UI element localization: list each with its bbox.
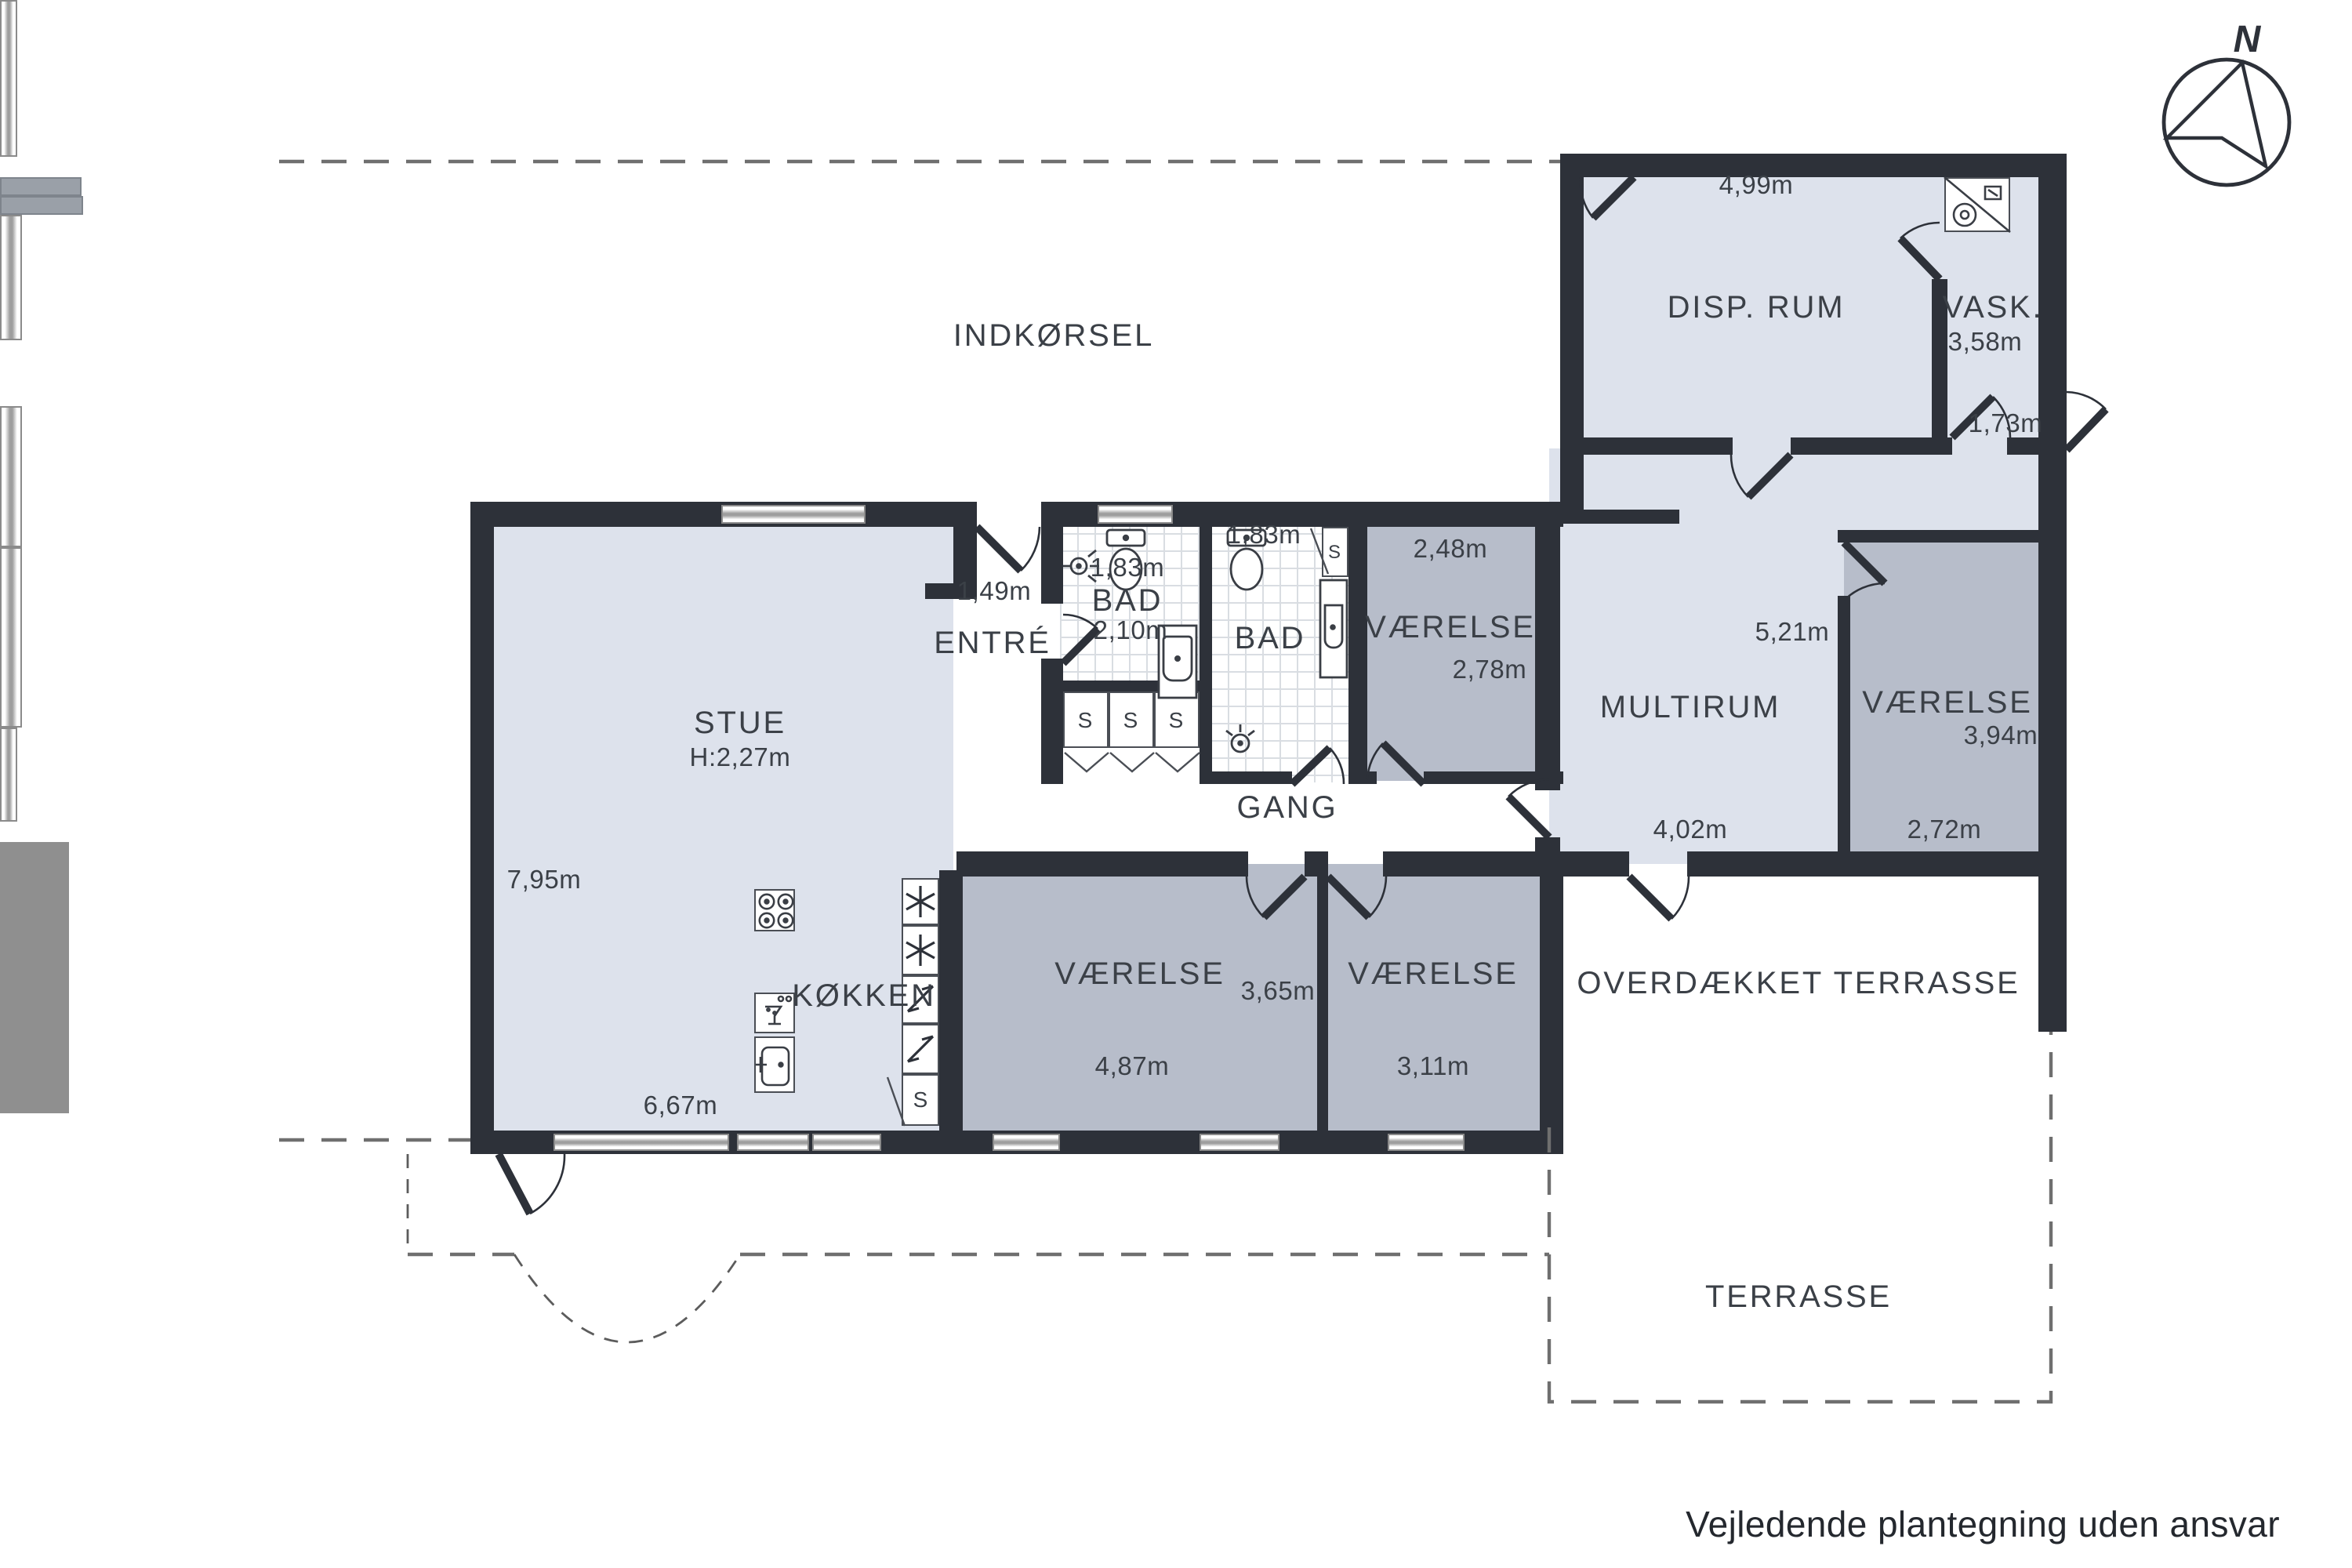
dim-vaerelse-right-bottom: 2,72m [1907,816,1982,846]
plan-linework [0,0,2352,1568]
room-label-vaerelse-b1: VÆRELSE [1054,957,1225,993]
bay-outline-dashed [408,1154,740,1342]
closet-label: S [1328,541,1341,563]
dim-vaerelse-mid-right: 2,78m [1453,656,1527,686]
lightning-icon [908,1036,933,1062]
closet-label: S [1123,707,1138,732]
room-label-vaerelse-b2: VÆRELSE [1348,957,1518,993]
dim-stue-bottom: 6,67m [644,1092,718,1122]
room-label-stue: STUE [694,706,786,742]
room-label-vask: VASK. [1943,291,2044,327]
appliance-icons [906,886,935,1062]
kitchen-fixtures [756,895,793,1085]
area-label-overdaekket-terrasse: OVERDÆKKET TERRASSE [1577,967,2020,1003]
dim-vaerelse-b1-right: 3,65m [1241,978,1316,1007]
dim-bad2-top: 1,83m [1227,521,1301,551]
kitchen-sink-basin [756,1047,789,1085]
closet-label: S [913,1087,928,1112]
compass [2164,60,2289,185]
stove-burners [760,895,793,927]
room-label-disp-rum: DISP. RUM [1668,291,1846,327]
dim-multirum-right: 5,21m [1755,619,1830,648]
dim-bad1-top: 1,83m [1091,554,1165,584]
area-label-indkorsel: INDKØRSEL [953,319,1154,355]
dim-vask-bottom: 1,73m [1969,410,2043,440]
dim-vaerelse-b2-bottom: 3,11m [1397,1053,1469,1083]
dim-vaerelse-right-right: 3,94m [1964,722,2038,752]
room-label-bad1: BAD [1092,584,1163,620]
room-label-multirum: MULTIRUM [1600,691,1781,727]
ceiling-lamp-icon [1226,724,1254,752]
dim-vaerelse-mid-top: 2,48m [1414,535,1488,565]
dim-vaerelse-b1-bottom: 4,87m [1095,1053,1170,1083]
dim-disp-rum-top: 4,99m [1719,172,1794,201]
floor-plan: N INDKØRSEL OVERDÆKKET TERRASSE TERRASSE… [0,0,2352,1568]
snowflake-icon [906,935,935,966]
dim-bad1-mid: 2,10m [1094,617,1168,647]
closet-label: S [1169,707,1184,732]
compass-north-label: N [2234,19,2261,63]
room-label-entre: ENTRÉ [934,626,1051,662]
dim-vask-mid: 3,58m [1948,328,2023,358]
dim-entre-door: 1,49m [957,578,1032,608]
closet-label: S [1078,707,1093,732]
room-label-bad2: BAD [1235,622,1306,658]
washing-machine-detail [1944,177,2010,232]
room-label-vaerelse-right: VÆRELSE [1862,686,2032,722]
ceiling-height-stue: H:2,27m [690,744,791,774]
room-label-gang: GANG [1237,791,1338,827]
area-label-terrasse: TERRASSE [1705,1280,1892,1316]
site-boundary-dashed [279,162,2051,1402]
dim-multirum-bottom: 4,02m [1653,816,1728,846]
dim-stue-left: 7,95m [507,866,582,896]
room-label-vaerelse-mid: VÆRELSE [1365,611,1535,647]
sink-icon [1320,580,1347,677]
disclaimer-text: Vejledende plantegning uden ansvar [1686,1504,2280,1546]
dishwasher-glass [762,996,791,1024]
snowflake-icon [906,886,935,917]
room-label-kokken: KØKKEN [792,979,936,1015]
